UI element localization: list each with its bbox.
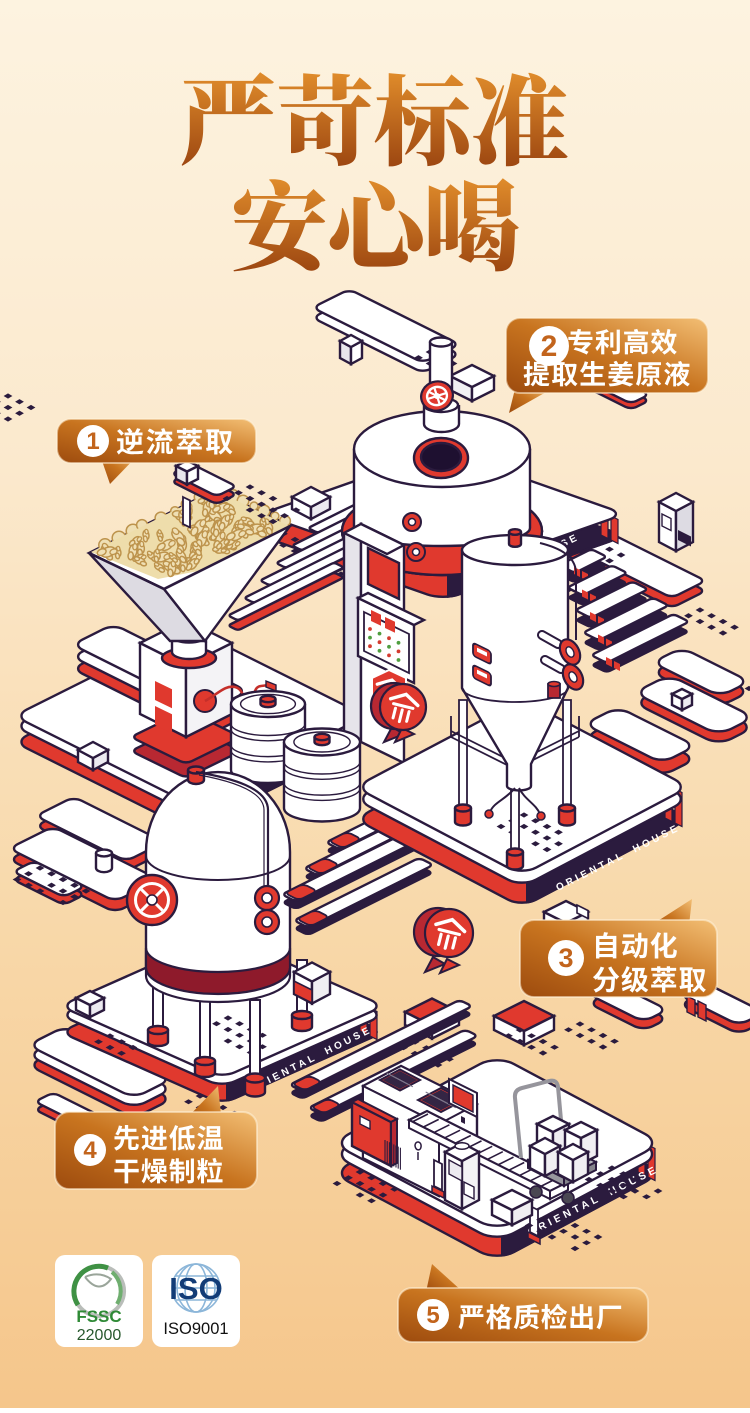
svg-text:22000: 22000: [77, 1327, 122, 1344]
svg-text:5: 5: [426, 1302, 439, 1329]
svg-text:ISO9001: ISO9001: [163, 1320, 228, 1338]
svg-text:3: 3: [558, 943, 573, 973]
svg-text:1: 1: [86, 428, 99, 455]
svg-text:ISO: ISO: [169, 1271, 222, 1306]
svg-text:FSSC: FSSC: [76, 1307, 121, 1326]
svg-text:2: 2: [541, 330, 558, 363]
svg-text:4: 4: [83, 1137, 97, 1164]
